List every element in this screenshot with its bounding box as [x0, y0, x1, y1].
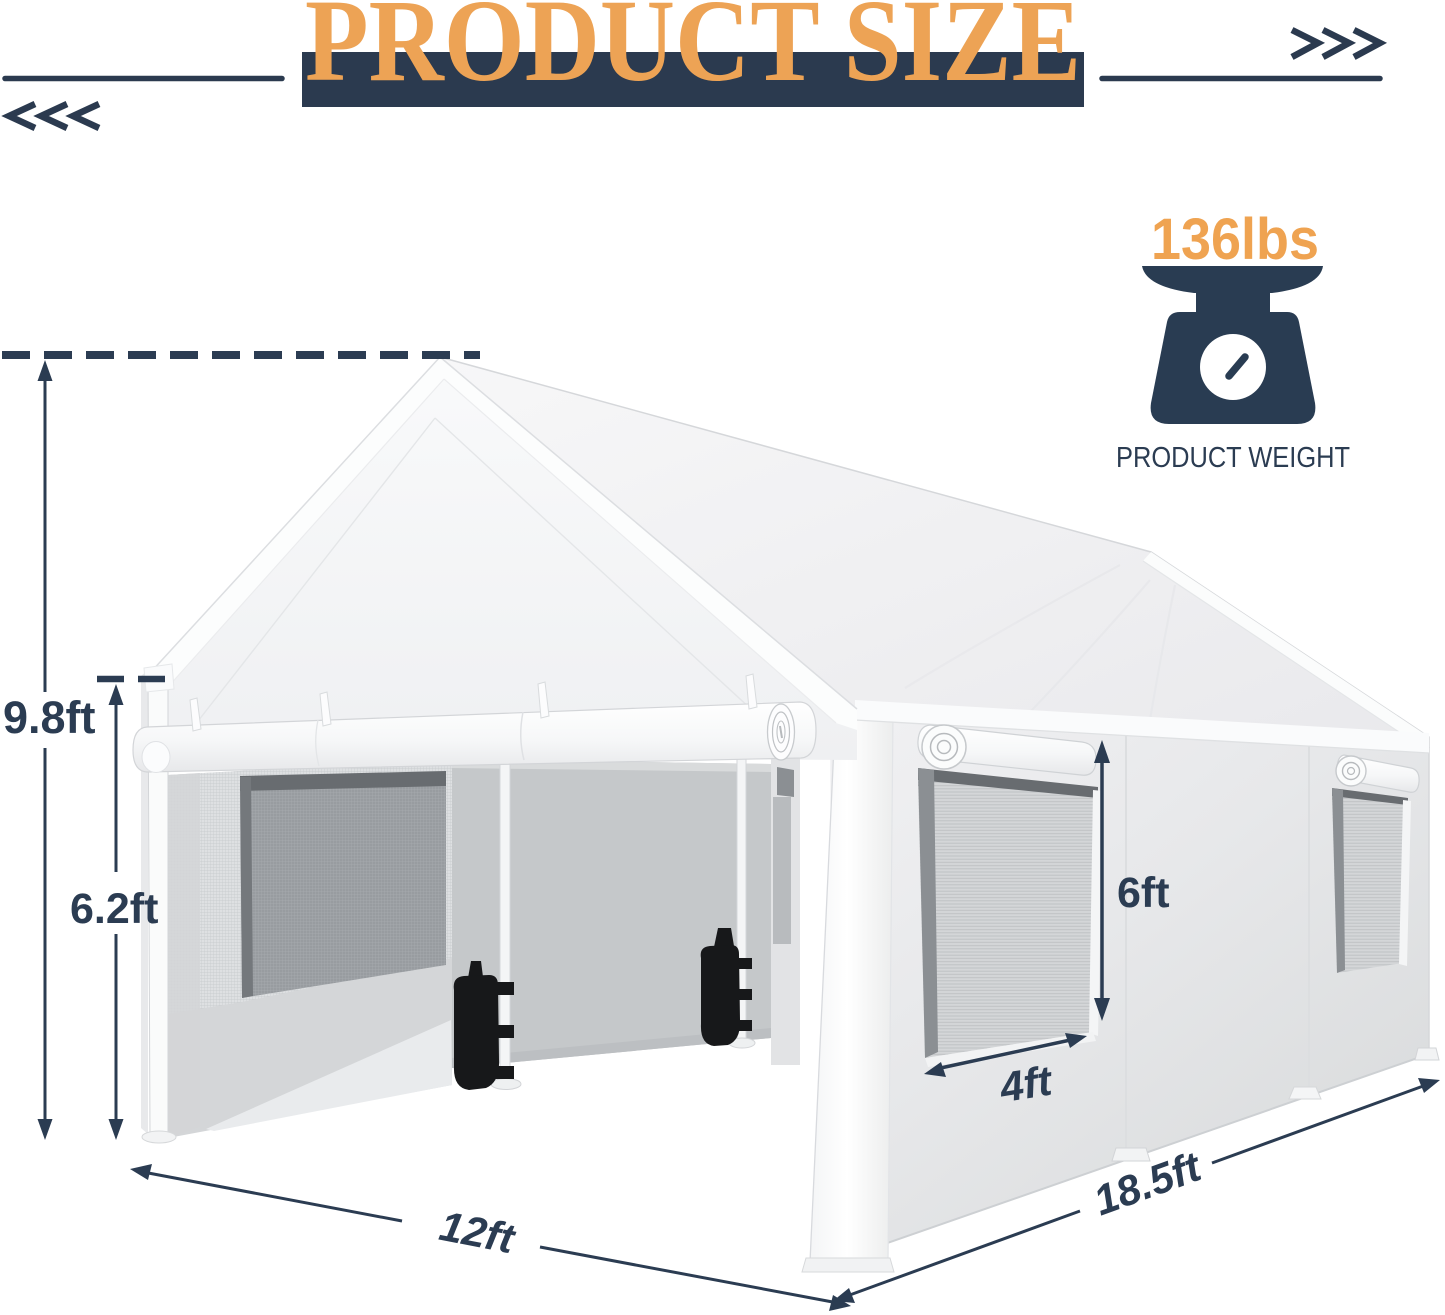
- svg-text:PRODUCT SIZE: PRODUCT SIZE: [305, 0, 1081, 106]
- svg-text:9.8ft: 9.8ft: [3, 692, 96, 743]
- svg-text:136lbs: 136lbs: [1151, 207, 1319, 272]
- svg-text:PRODUCT WEIGHT: PRODUCT WEIGHT: [1116, 442, 1350, 474]
- svg-text:6ft: 6ft: [1117, 869, 1170, 917]
- svg-text:4ft: 4ft: [996, 1056, 1057, 1111]
- svg-text:6.2ft: 6.2ft: [70, 885, 158, 933]
